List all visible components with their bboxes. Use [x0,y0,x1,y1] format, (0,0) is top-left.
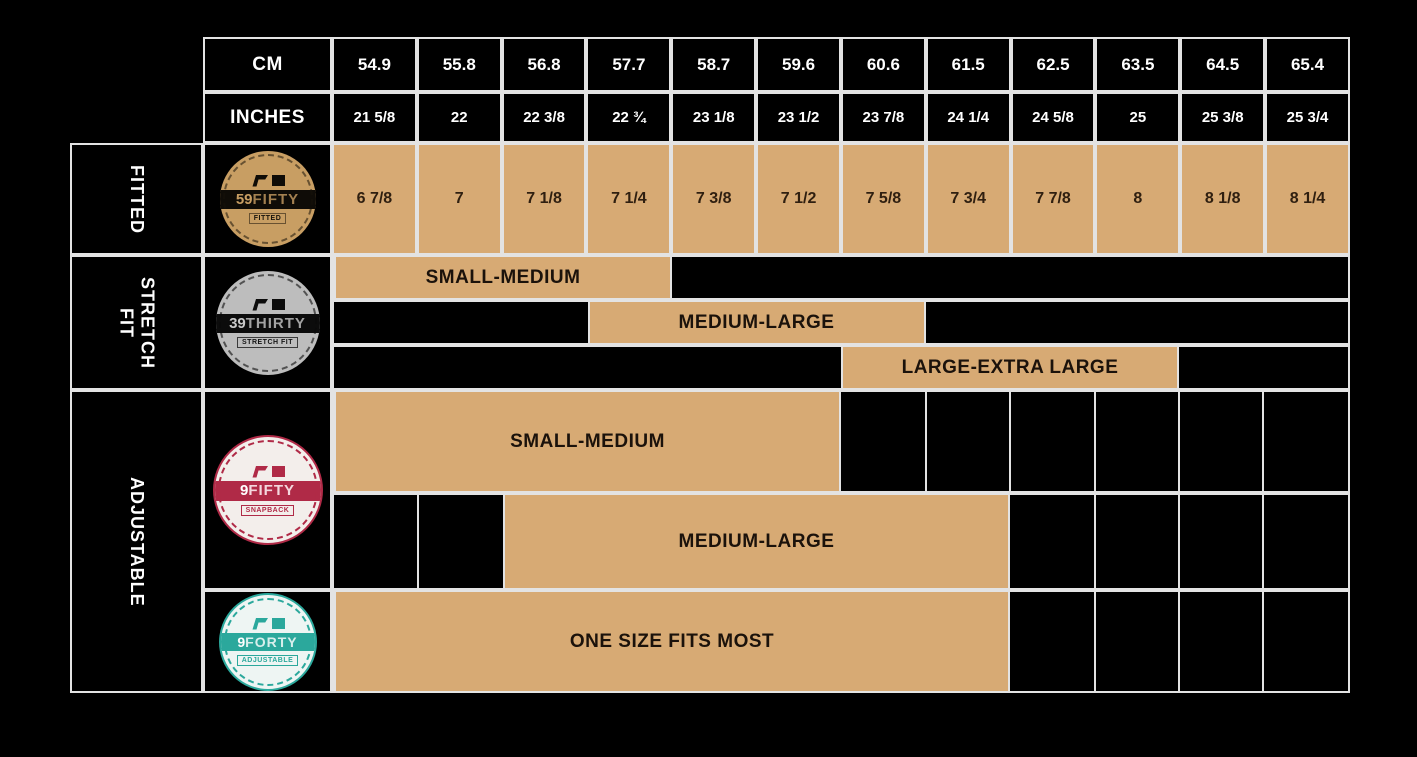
section-label-adjustable: ADJUSTABLE [70,390,203,693]
inches-value-cell: 25 3/8 [1180,92,1265,143]
cm-value-cell: 59.6 [756,37,841,92]
cm-value-cell: 57.7 [586,37,671,92]
column-separator [417,495,419,588]
cm-value-cell: 60.6 [841,37,926,92]
inches-label: INCHES [230,107,305,129]
inches-value-cell: 22 ¾ [586,92,671,143]
column-separator [1094,592,1096,691]
inches-value-cell: 25 3/4 [1265,92,1350,143]
new-era-cap-size-chart: CM 54.955.856.857.758.759.660.661.562.56… [0,0,1417,757]
fitted-size-cell: 7 1/8 [502,143,587,255]
band-label: MEDIUM-LARGE [679,312,835,334]
cm-header-cell: CM [203,37,332,92]
fitted-size-cell: 8 1/4 [1265,143,1350,255]
band-row: SMALL-MEDIUM [332,390,1350,493]
cm-value-cell: 65.4 [1265,37,1350,92]
band-row: MEDIUM-LARGE [332,493,1350,590]
inches-value-cell: 23 1/2 [756,92,841,143]
dashed-ring [218,440,318,540]
logo-cell-9fifty: 9FIFTY SNAPBACK [203,390,332,590]
fitted-size-cell: 7 3/8 [671,143,756,255]
dashed-ring [224,598,312,686]
fitted-size-cell: 7 5/8 [841,143,926,255]
band-label: SMALL-MEDIUM [510,431,665,453]
fitted-size-cell: 7 1/2 [756,143,841,255]
column-separator [1262,592,1264,691]
band-label: ONE SIZE FITS MOST [570,631,774,653]
size-band: ONE SIZE FITS MOST [334,592,1010,691]
fitted-size-cell: 8 1/8 [1180,143,1265,255]
cm-value-cell: 56.8 [502,37,587,92]
column-separator [1262,495,1264,588]
inches-value-cell: 24 1/4 [926,92,1011,143]
inches-value-cell: 24 5/8 [1011,92,1096,143]
column-separator [1178,592,1180,691]
size-band: MEDIUM-LARGE [503,495,1010,588]
column-separator [1178,392,1180,491]
9fifty-bands: SMALL-MEDIUMMEDIUM-LARGE [332,390,1350,590]
cm-value-cell: 63.5 [1095,37,1180,92]
inches-value-cell: 23 7/8 [841,92,926,143]
logo-cell-39thirty: 39THIRTY STRETCH FIT [203,255,332,390]
band-row: LARGE-EXTRA LARGE [332,345,1350,390]
band-row: SMALL-MEDIUM [332,255,1350,300]
fitted-label: FITTED [126,165,147,234]
cm-values-row: 54.955.856.857.758.759.660.661.562.563.5… [332,37,1350,92]
39thirty-logo: 39THIRTY STRETCH FIT [216,271,320,375]
fitted-size-cell: 7 3/4 [926,143,1011,255]
cm-value-cell: 58.7 [671,37,756,92]
band-row: ONE SIZE FITS MOST [332,590,1350,693]
column-separator [1094,495,1096,588]
size-table: CM 54.955.856.857.758.759.660.661.562.56… [70,37,1350,693]
inches-value-cell: 25 [1095,92,1180,143]
band-label: MEDIUM-LARGE [679,531,835,553]
fitted-size-cell: 8 [1095,143,1180,255]
59fifty-logo: 59FIFTY FITTED [220,151,316,247]
cm-value-cell: 55.8 [417,37,502,92]
cm-value-cell: 64.5 [1180,37,1265,92]
column-separator [1262,392,1264,491]
column-separator [1094,392,1096,491]
stretch-fit-bands: SMALL-MEDIUMMEDIUM-LARGELARGE-EXTRA LARG… [332,255,1350,390]
fitted-size-cell: 7 [417,143,502,255]
logo-cell-9forty: 9FORTY ADJUSTABLE [203,590,332,693]
inches-header-cell: INCHES [203,92,332,143]
9forty-bands: ONE SIZE FITS MOST [332,590,1350,693]
section-label-fitted: FITTED [70,143,203,255]
inches-value-cell: 21 5/8 [332,92,417,143]
9forty-logo: 9FORTY ADJUSTABLE [219,593,317,691]
inches-value-cell: 22 3/8 [502,92,587,143]
size-band: MEDIUM-LARGE [588,302,926,343]
measurement-header: CM 54.955.856.857.758.759.660.661.562.56… [203,37,1350,143]
cm-value-cell: 62.5 [1011,37,1096,92]
cm-value-cell: 61.5 [926,37,1011,92]
section-label-stretch-fit: STRETCH FIT [70,255,203,390]
size-band: LARGE-EXTRA LARGE [841,347,1179,388]
column-separator [1009,392,1011,491]
column-separator [925,392,927,491]
fitted-size-cell: 7 7/8 [1011,143,1096,255]
inches-value-cell: 23 1/8 [671,92,756,143]
inches-value-cell: 22 [417,92,502,143]
inches-values-row: 21 5/82222 3/822 ¾23 1/823 1/223 7/824 1… [332,92,1350,143]
logo-cell-59fifty: 59FIFTY FITTED [203,143,332,255]
cm-row: CM 54.955.856.857.758.759.660.661.562.56… [203,37,1350,92]
column-separator [1178,495,1180,588]
cm-value-cell: 54.9 [332,37,417,92]
fitted-size-cell: 6 7/8 [332,143,417,255]
9fifty-logo: 9FIFTY SNAPBACK [213,435,323,545]
fitted-size-cell: 7 1/4 [586,143,671,255]
cm-label: CM [252,54,283,76]
size-band: SMALL-MEDIUM [334,257,672,298]
band-label: SMALL-MEDIUM [426,267,581,289]
fitted-sizes-row: 6 7/877 1/87 1/47 3/87 1/27 5/87 3/47 7/… [332,143,1350,255]
inches-row: INCHES 21 5/82222 3/822 ¾23 1/823 1/223 … [203,92,1350,143]
adjustable-label: ADJUSTABLE [126,477,147,607]
band-row: MEDIUM-LARGE [332,300,1350,345]
size-band: SMALL-MEDIUM [334,392,841,491]
band-label: LARGE-EXTRA LARGE [902,357,1119,379]
stretch-fit-label: STRETCH FIT [116,277,158,369]
